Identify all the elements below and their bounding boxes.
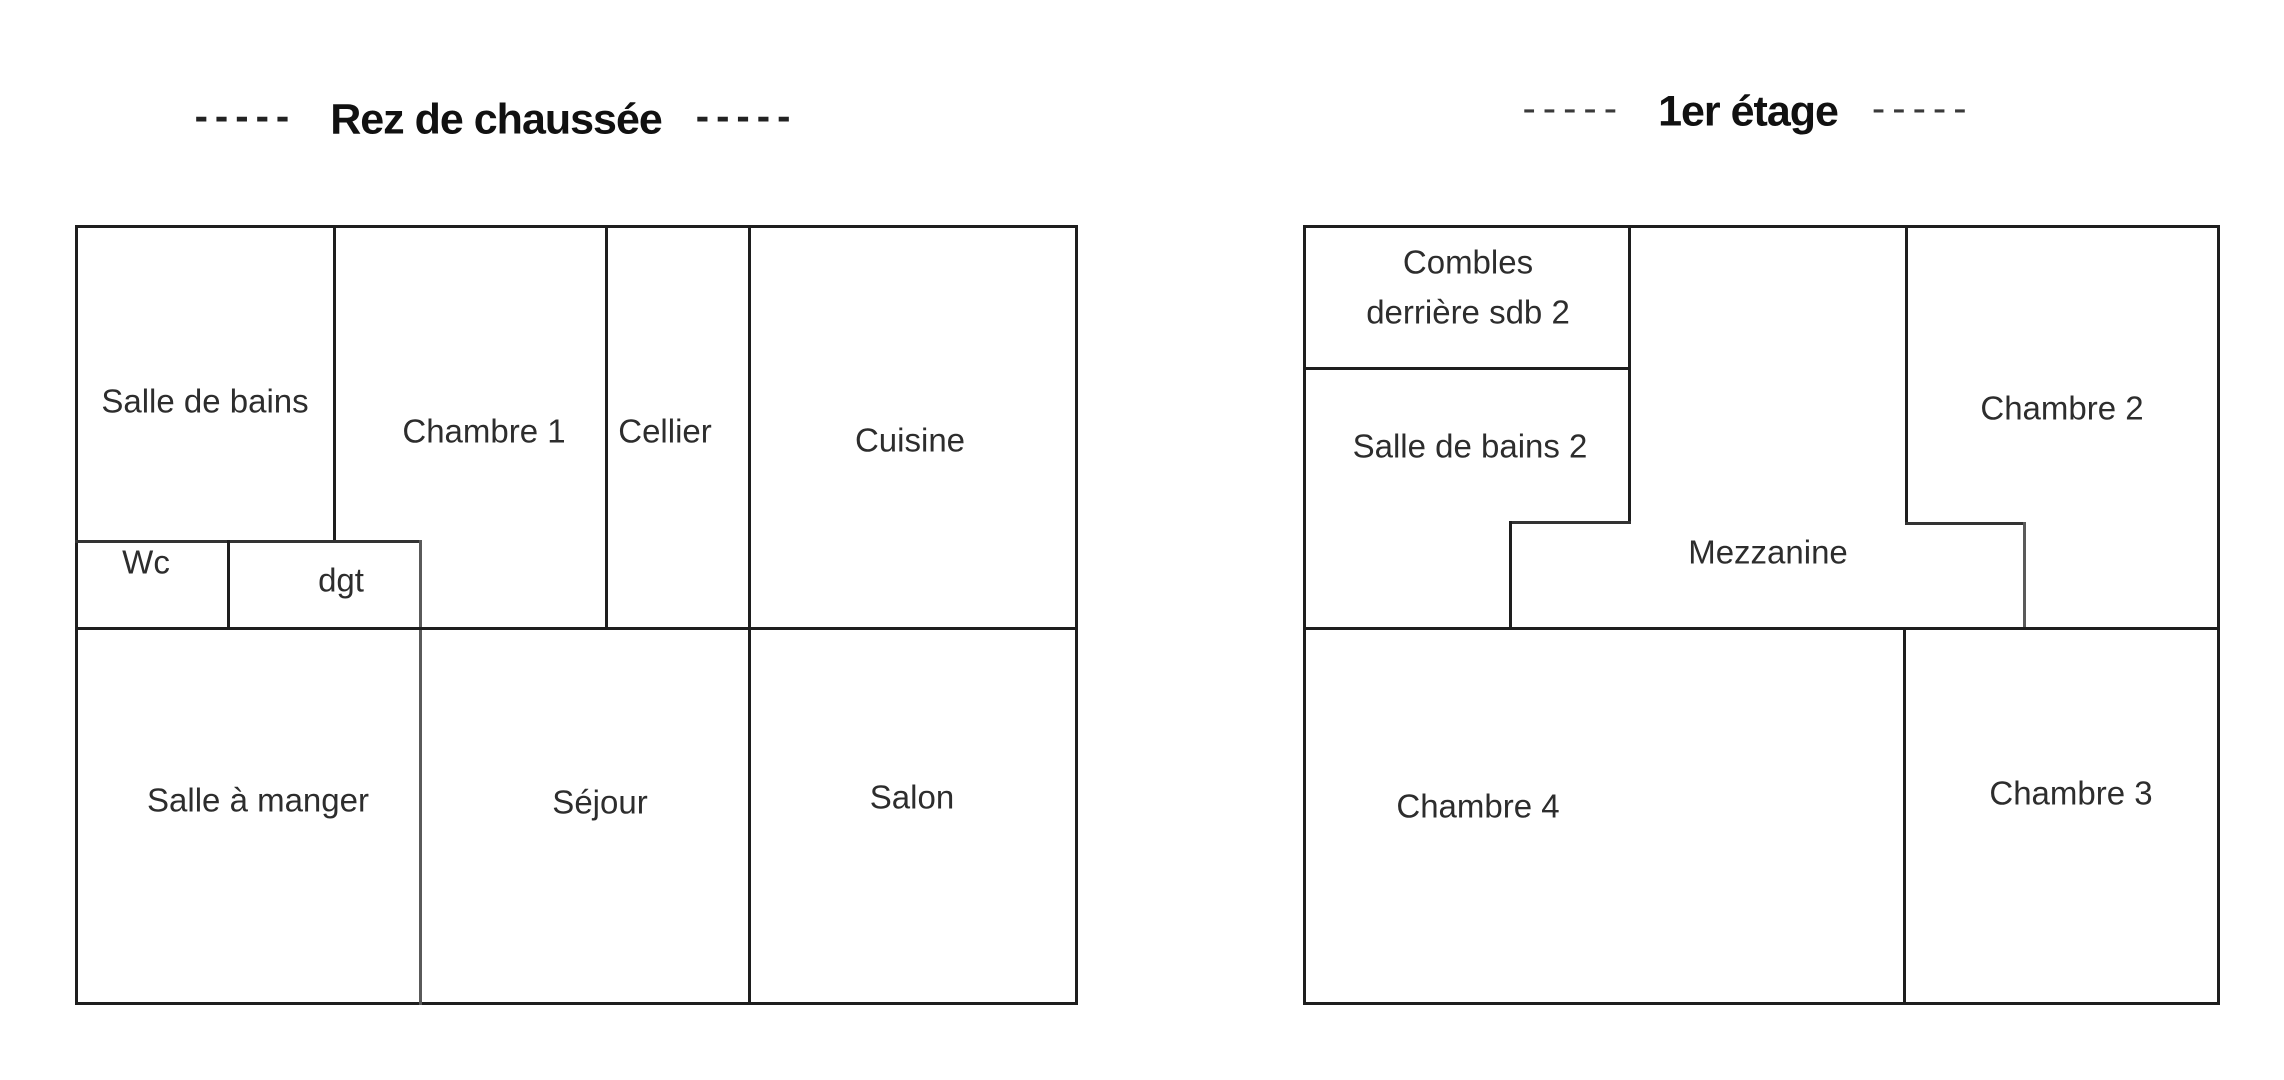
room-label-chambre-3: Chambre 3	[1989, 768, 2152, 818]
wall-first-mid-horizontal	[1303, 627, 2220, 630]
wall-chambre2-step-horizontal	[1905, 522, 2026, 525]
wall-sdb-chambre1	[333, 225, 336, 540]
wall-sdb2-step-horizontal	[1509, 521, 1631, 524]
room-label-salle-de-bains-2: Salle de bains 2	[1353, 421, 1588, 471]
wall-sdb2-step-vertical	[1509, 521, 1512, 630]
title-dashes-left: -----	[1522, 87, 1624, 132]
first-floor-title-text: 1er étage	[1658, 88, 1838, 137]
wall-chambre1-cellier	[605, 225, 608, 627]
ground-floor-outline	[75, 225, 1078, 1005]
room-label-combles-line2: derrière sdb 2	[1366, 287, 1570, 337]
room-label-salon: Salon	[870, 772, 954, 822]
room-label-cuisine: Cuisine	[855, 415, 965, 465]
wall-ground-mid-horizontal	[75, 627, 1078, 630]
wall-dgt-right-sam-sejour	[419, 540, 422, 1005]
room-label-chambre-4: Chambre 4	[1396, 781, 1559, 831]
room-label-cellier: Cellier	[618, 406, 712, 456]
room-label-combles-line1: Combles	[1366, 238, 1570, 288]
room-label-wc: Wc	[122, 537, 170, 587]
wall-chambre2-left	[1905, 225, 1908, 524]
title-dashes-left: -----	[195, 95, 297, 140]
first-floor-title: ----- 1er étage -----	[1522, 88, 1973, 137]
ground-floor-title: ----- Rez de chaussée -----	[195, 96, 798, 145]
floorplan-canvas: ----- Rez de chaussée ----- ----- 1er ét…	[0, 0, 2284, 1080]
room-label-dgt: dgt	[318, 555, 364, 605]
wall-chambre2-step-vertical	[2023, 522, 2026, 630]
title-dashes-right: -----	[1872, 87, 1974, 132]
wall-chambre4-chambre3	[1903, 627, 1906, 1005]
room-label-mezzanine: Mezzanine	[1688, 527, 1848, 577]
room-label-chambre-2: Chambre 2	[1980, 383, 2143, 433]
room-label-chambre-1: Chambre 1	[402, 406, 565, 456]
first-floor-outline	[1303, 225, 2220, 1005]
wall-combles-sdb2-right	[1628, 225, 1631, 523]
room-label-salle-de-bains: Salle de bains	[101, 376, 308, 426]
room-label-sejour: Séjour	[552, 777, 647, 827]
ground-floor-title-text: Rez de chaussée	[330, 96, 662, 145]
room-label-salle-a-manger: Salle à manger	[147, 775, 369, 825]
wall-wc-dgt-divider	[227, 540, 230, 627]
title-dashes-right: -----	[696, 95, 798, 140]
room-label-combles: Combles derrière sdb 2	[1366, 238, 1570, 337]
wall-cellier-cuisine-sejour-salon	[748, 225, 751, 1005]
wall-combles-bottom	[1303, 367, 1631, 370]
